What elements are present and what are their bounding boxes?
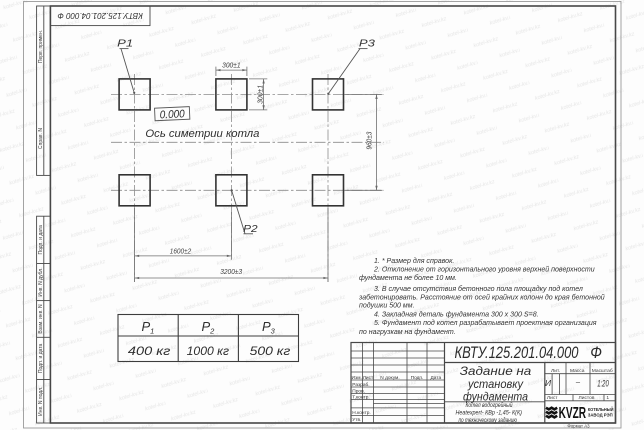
svg-text:1600±2: 1600±2 [170,248,192,255]
svg-text:Инв. N дубл.: Инв. N дубл. [38,267,44,296]
svg-text:Котел водогрейный: Котел водогрейный [466,402,514,409]
svg-text:3. В случае отсутствия бетонн: 3. В случае отсутствия бетонного пола пл… [374,285,583,293]
svg-text:Перв. примен.: Перв. примен. [38,30,44,63]
svg-text:Т.контр.: Т.контр. [352,395,369,401]
svg-text:300±1: 300±1 [258,85,265,104]
svg-text:P2: P2 [243,223,258,235]
svg-text:Подп.: Подп. [411,375,424,381]
svg-text:1:20: 1:20 [597,379,609,389]
svg-text:N докум.: N докум. [380,375,399,381]
svg-text:Взам. инв. N: Взам. инв. N [38,304,44,334]
svg-text:И: И [545,378,552,388]
svg-text:Лит.: Лит. [551,368,560,374]
svg-text:Листов: Листов [579,395,595,401]
svg-text:Инв. N подл.: Инв. N подл. [38,386,44,415]
svg-text:Ф: Ф [590,344,602,362]
svg-text:Лист: Лист [547,395,558,401]
svg-text:по нагрузкам на фундамент.: по нагрузкам на фундамент. [359,328,456,336]
svg-text:Пров.: Пров. [352,388,365,394]
svg-text:Утв.: Утв. [352,417,361,423]
svg-text:960±3: 960±3 [366,132,373,150]
svg-text:Подп. и дата: Подп. и дата [38,225,44,255]
svg-text:Изм.: Изм. [352,375,362,381]
svg-text:Ось симетрии котла: Ось симетрии котла [145,128,259,140]
svg-text:1. * Размер для справок.: 1. * Размер для справок. [374,257,454,265]
svg-text:3200±3: 3200±3 [220,269,242,276]
svg-text:Масса: Масса [570,368,585,374]
svg-text:фундамента не более 10 мм.: фундамента не более 10 мм. [359,274,457,282]
svg-text:4. Закладная деталь фундамент: 4. Закладная деталь фундамента 300 x 300… [374,311,539,319]
svg-text:5. Фундамент под котел разраб: 5. Фундамент под котел разрабатывает про… [374,319,597,327]
svg-text:0.000: 0.000 [159,108,185,121]
svg-text:Лист: Лист [363,375,374,381]
svg-text:Разраб.: Разраб. [352,382,369,388]
svg-text:по техническому заданию: по техническому заданию [458,418,517,424]
svg-text:300±1: 300±1 [222,62,241,69]
svg-text:2. Отклонение от горизонтальн: 2. Отклонение от горизонтального уровня … [373,266,595,274]
svg-text:Формат А3: Формат А3 [567,424,590,429]
svg-text:400 кг: 400 кг [128,346,171,358]
svg-text:Heatexpert- КВр -1,45- К(К): Heatexpert- КВр -1,45- К(К) [455,411,522,417]
svg-text:KVZR: KVZR [559,405,587,422]
svg-text:1: 1 [606,395,609,401]
svg-text:Н.контр.: Н.контр. [352,410,370,416]
svg-text:Подп. и дата: Подп. и дата [38,343,44,373]
svg-text:КВТУ.125.201.04.000 Ф: КВТУ.125.201.04.000 Ф [57,11,143,20]
svg-text:1000 кг: 1000 кг [187,346,230,358]
svg-text:Масштаб: Масштаб [592,368,613,374]
svg-text:500 кг: 500 кг [250,346,291,358]
svg-text:ЗАВОД РЭП: ЗАВОД РЭП [588,412,614,417]
svg-text:забетонировать. Расстояние от: забетонировать. Расстояние от осей крайн… [358,294,605,302]
svg-text:P3: P3 [359,37,375,49]
svg-text:КОТЕЛЬНЫЙ: КОТЕЛЬНЫЙ [588,405,614,412]
svg-text:Дата: Дата [430,375,441,381]
svg-text:Справ. N: Справ. N [38,128,44,149]
svg-text:подушки 500 мм.: подушки 500 мм. [359,302,415,310]
svg-text:P1: P1 [117,37,133,49]
svg-text:фундамента: фундамента [463,390,528,404]
svg-text:КВТУ.125.201.04.000: КВТУ.125.201.04.000 [455,344,580,362]
